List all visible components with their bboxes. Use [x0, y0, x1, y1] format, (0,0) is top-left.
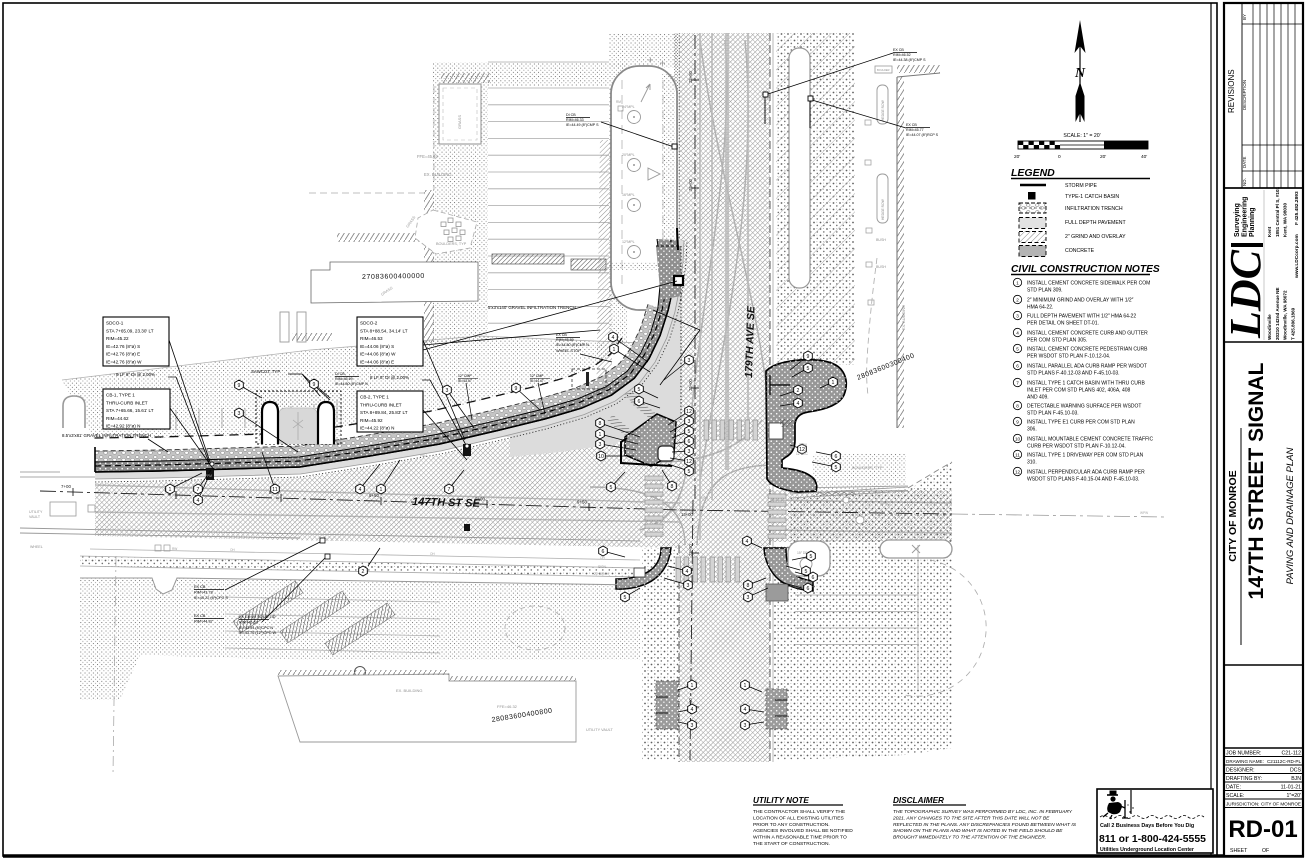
- svg-text:20': 20': [1014, 154, 1020, 160]
- svg-text:UTILITY NOTE: UTILITY NOTE: [753, 796, 809, 805]
- svg-text:DRAFTING BY:: DRAFTING BY:: [1226, 776, 1262, 782]
- svg-text:1: 1: [380, 487, 383, 493]
- svg-text:INSTALL PERPENDICULAR ADA CURB: INSTALL PERPENDICULAR ADA CURB RAMP PER: [1027, 470, 1145, 476]
- svg-text:PER WSDOT STD PLAN F-10.12-04.: PER WSDOT STD PLAN F-10.12-04.: [1027, 354, 1110, 360]
- svg-text:CB-2, TYPE 1: CB-2, TYPE 1: [360, 395, 389, 400]
- svg-text:HEDGE ROW: HEDGE ROW: [881, 99, 885, 121]
- svg-text:STD PLAN F-45.10-03.: STD PLAN F-45.10-03.: [1027, 411, 1079, 417]
- svg-text:RIM=45.89: RIM=45.89: [556, 338, 574, 342]
- svg-text:CURB PER WSDOT STD PLAN F-10.1: CURB PER WSDOT STD PLAN F-10.12-04.: [1027, 444, 1126, 450]
- svg-text:IE=42.76 (8″ø) S: IE=42.76 (8″ø) S: [106, 344, 140, 349]
- svg-text:Kent, WA 98030: Kent, WA 98030: [1283, 203, 1288, 237]
- svg-text:LEGEND: LEGEND: [1011, 167, 1055, 179]
- svg-text:306.: 306.: [1027, 427, 1037, 433]
- svg-text:IE=44.06 (8″ø) W: IE=44.06 (8″ø) W: [360, 352, 396, 357]
- svg-text:11-01-21: 11-01-21: [1281, 784, 1301, 790]
- svg-text:4: 4: [746, 539, 749, 545]
- svg-text:9+50: 9+50: [577, 499, 587, 504]
- svg-text:8: 8: [599, 421, 602, 427]
- svg-text:FFE=46.32: FFE=46.32: [497, 704, 518, 709]
- svg-text:PAVING AND DRAINAGE PLAN: PAVING AND DRAINAGE PLAN: [1285, 447, 1296, 584]
- svg-text:5: 5: [610, 485, 613, 491]
- svg-text:25+00: 25+00: [688, 378, 693, 390]
- svg-text:LDC: LDC: [1221, 249, 1270, 339]
- svg-text:CIVIL CONSTRUCTION NOTES: CIVIL CONSTRUCTION NOTES: [1011, 264, 1160, 275]
- svg-text:IE=42.76 (8″ø) W: IE=42.76 (8″ø) W: [106, 360, 142, 365]
- svg-text:6: 6: [638, 399, 641, 405]
- svg-text:9: 9: [313, 382, 316, 388]
- svg-text:WPW: WPW: [880, 502, 888, 506]
- svg-text:8 LF 8″ DI @ 2.00%: 8 LF 8″ DI @ 2.00%: [116, 372, 155, 377]
- svg-text:10: 10: [1015, 436, 1021, 441]
- svg-text:3: 3: [747, 595, 750, 601]
- svg-text:INSTALL TYPE 1 CATCH BASIN WIT: INSTALL TYPE 1 CATCH BASIN WITH THRU CUR…: [1027, 381, 1145, 387]
- svg-text:3: 3: [691, 723, 694, 729]
- svg-text:4: 4: [744, 707, 747, 713]
- svg-text:BJN: BJN: [1291, 776, 1301, 782]
- svg-text:811 or 1-800-424-5555: 811 or 1-800-424-5555: [1099, 834, 1206, 845]
- svg-text:16″MPL: 16″MPL: [622, 193, 635, 197]
- svg-text:3: 3: [744, 723, 747, 729]
- svg-text:PER COM STD PLAN 305.: PER COM STD PLAN 305.: [1027, 338, 1087, 344]
- svg-text:SDCO-1: SDCO-1: [106, 321, 124, 326]
- svg-text:12' DEC: 12' DEC: [796, 452, 808, 456]
- svg-text:PPM: PPM: [205, 474, 212, 478]
- svg-text:STA 8+89.84, 25.83' LT: STA 8+89.84, 25.83' LT: [360, 410, 408, 415]
- svg-text:IE=44.47: IE=44.47: [530, 379, 544, 383]
- svg-text:24″MPL: 24″MPL: [622, 105, 635, 109]
- svg-text:N: N: [1074, 66, 1086, 81]
- svg-text:3: 3: [446, 388, 449, 394]
- svg-text:IE=43.57: IE=43.57: [458, 379, 472, 383]
- svg-text:FULL DEPTH PAVEMENT: FULL DEPTH PAVEMENT: [1065, 220, 1127, 226]
- svg-text:5: 5: [805, 569, 808, 575]
- svg-text:EX. BUILDING: EX. BUILDING: [396, 688, 422, 693]
- svg-text:WPW: WPW: [700, 496, 708, 500]
- svg-text:RIM=45.22: RIM=45.22: [106, 336, 129, 341]
- svg-text:RIM=45.99: RIM=45.99: [335, 377, 353, 381]
- svg-text:HMA 64-22.: HMA 64-22.: [1027, 305, 1053, 311]
- svg-text:STD PLAN 309.: STD PLAN 309.: [1027, 288, 1063, 294]
- svg-text:IE=42.92 (8″ø) N: IE=42.92 (8″ø) N: [106, 424, 140, 429]
- svg-text:WHEEL STOP: WHEEL STOP: [556, 349, 581, 353]
- svg-text:RIM=43.78: RIM=43.78: [194, 590, 213, 594]
- svg-text:THE CONTRACTOR SHALL VERIFY: THE CONTRACTOR SHALL VERIFY THE: [753, 809, 846, 815]
- svg-text:20': 20': [1100, 154, 1106, 160]
- svg-text:1: 1: [744, 683, 747, 689]
- svg-text:INSTALL CEMENT CONCRETE CURB A: INSTALL CEMENT CONCRETE CURB AND GUTTER: [1027, 331, 1148, 337]
- svg-text:IE=44.06 (8″ø) S: IE=44.06 (8″ø) S: [360, 344, 394, 349]
- svg-text:OH: OH: [600, 556, 605, 560]
- svg-text:5: 5: [688, 429, 691, 435]
- svg-text:1851 Central Pl S, #101: 1851 Central Pl S, #101: [1275, 187, 1280, 237]
- svg-text:OF: OF: [1262, 848, 1269, 854]
- svg-text:C21112C-RD-PL: C21112C-RD-PL: [1267, 759, 1301, 764]
- svg-text:DETECTABLE WARNING SURFACE PER: DETECTABLE WARNING SURFACE PER WSDOT: [1027, 404, 1141, 410]
- svg-text:9: 9: [807, 354, 810, 360]
- svg-text:RIM=45.92: RIM=45.92: [360, 418, 383, 423]
- svg-text:3: 3: [687, 583, 690, 589]
- svg-text:RIM=46.52: RIM=46.52: [893, 53, 911, 57]
- svg-text:SHOWN ON THE PLANS AND WH: SHOWN ON THE PLANS AND WHAT IS NOTED IN …: [893, 828, 1063, 834]
- svg-text:WHEEL: WHEEL: [30, 545, 43, 549]
- svg-text:Surveying: Surveying: [1234, 203, 1241, 237]
- svg-text:REFLECTED IN THE PLANS. AN: REFLECTED IN THE PLANS. ANY DISCREPANCIE…: [893, 822, 1077, 828]
- svg-text:3: 3: [688, 449, 691, 455]
- svg-text:11: 11: [1015, 452, 1020, 457]
- svg-text:BUSH: BUSH: [876, 265, 886, 269]
- svg-text:BUSH: BUSH: [876, 238, 886, 242]
- svg-text:5: 5: [810, 554, 813, 560]
- svg-text:SIGN: SIGN: [799, 443, 807, 447]
- svg-text:DATE:: DATE:: [1226, 784, 1241, 790]
- svg-text:DRAWING NAME:: DRAWING NAME:: [1226, 759, 1264, 764]
- svg-text:EX CB W/ SOLID LID: EX CB W/ SOLID LID: [239, 615, 276, 619]
- svg-text:RW: RW: [172, 547, 177, 551]
- svg-text:SHEET: SHEET: [1230, 848, 1248, 854]
- svg-text:THRU-CURB INLET: THRU-CURB INLET: [360, 402, 402, 407]
- svg-text:4: 4: [359, 487, 362, 493]
- svg-text:IE=43.76 (12″)CPC W: IE=43.76 (12″)CPC W: [239, 631, 277, 635]
- svg-text:DATE: DATE: [1242, 157, 1247, 168]
- svg-text:IE=44.49 (8″)CMP S: IE=44.49 (8″)CMP S: [566, 123, 599, 127]
- svg-text:T 425.806.1869: T 425.806.1869: [1290, 307, 1295, 340]
- svg-text:1: 1: [599, 432, 602, 438]
- svg-text:20″MPL: 20″MPL: [622, 153, 635, 157]
- svg-text:12″MPL: 12″MPL: [622, 240, 635, 244]
- svg-text:INLET PER COM STD PLANS 402, 4: INLET PER COM STD PLANS 402, 406A, 408: [1027, 388, 1131, 394]
- svg-text:STA 8+88.54, 34.14' LT: STA 8+88.54, 34.14' LT: [360, 328, 408, 333]
- svg-text:CITY OF MONROE: CITY OF MONROE: [1261, 801, 1301, 806]
- svg-text:DESCRIPTION: DESCRIPTION: [1242, 80, 1247, 110]
- svg-text:UTILITY VAULT: UTILITY VAULT: [586, 728, 613, 732]
- svg-text:JURISDICTION:: JURISDICTION:: [1226, 801, 1259, 806]
- svg-text:5: 5: [638, 387, 641, 393]
- svg-text:12: 12: [686, 409, 692, 415]
- svg-text:INSTALL PARALLEL ADA CURB RAMP: INSTALL PARALLEL ADA CURB RAMP PER WSDOT: [1027, 364, 1147, 370]
- svg-text:EX CB: EX CB: [893, 48, 904, 52]
- svg-text:INSTALL CEMENT CONCRETE PEDEST: INSTALL CEMENT CONCRETE PEDESTRIAN CURB: [1027, 347, 1148, 353]
- svg-text:DCS: DCS: [1290, 767, 1301, 773]
- svg-text:13+00: 13+00: [681, 512, 693, 517]
- svg-text:INSTALL CEMENT CONCRETE SIDEWA: INSTALL CEMENT CONCRETE SIDEWALK PER COM: [1027, 281, 1150, 287]
- svg-text:6: 6: [812, 575, 815, 581]
- svg-text:OH: OH: [430, 552, 435, 556]
- svg-text:9: 9: [1016, 419, 1019, 424]
- svg-text:20210 142nd Avenue NE: 20210 142nd Avenue NE: [1275, 287, 1280, 340]
- svg-text:GRASS: GRASS: [457, 115, 462, 129]
- svg-text:4: 4: [691, 707, 694, 713]
- svg-text:6: 6: [1016, 363, 1019, 368]
- svg-text:C21-112: C21-112: [1281, 750, 1301, 756]
- svg-text:BOULDERS, TYP: BOULDERS, TYP: [852, 466, 883, 470]
- svg-text:Woodinville, WA 98072: Woodinville, WA 98072: [1283, 290, 1288, 340]
- svg-text:6: 6: [602, 549, 605, 555]
- svg-text:INFILTRATION TRENCH: INFILTRATION TRENCH: [1065, 206, 1123, 212]
- svg-text:INSTALL TYPE E1 CURB PER COM S: INSTALL TYPE E1 CURB PER COM STD PLAN: [1027, 420, 1135, 426]
- svg-text:4: 4: [1016, 330, 1019, 335]
- svg-text:F 425.482.2893: F 425.482.2893: [1294, 191, 1300, 225]
- svg-text:DESIGNER:: DESIGNER:: [1226, 767, 1255, 773]
- svg-text:Planning: Planning: [1249, 207, 1256, 237]
- svg-text:10: 10: [598, 454, 604, 460]
- svg-text:1: 1: [613, 347, 616, 353]
- svg-text:3: 3: [688, 358, 691, 364]
- svg-text:40': 40': [1141, 154, 1147, 160]
- svg-text:7: 7: [448, 487, 451, 493]
- svg-text:BOULDER: BOULDER: [877, 68, 890, 72]
- svg-text:8.5'x3'x81' GRAVEL INFILTRATI: 8.5'x3'x81' GRAVEL INFILTRATION TRENCH: [62, 433, 151, 438]
- svg-text:VAULT: VAULT: [29, 515, 41, 519]
- svg-text:2: 2: [362, 569, 365, 575]
- svg-text:STA 7+65.66, 15.61' LT: STA 7+65.66, 15.61' LT: [106, 408, 154, 413]
- svg-text:5'x3'x140' GRAVEL INFILTRATIO: 5'x3'x140' GRAVEL INFILTRATION TRENCH: [488, 305, 576, 310]
- svg-text:SDCO-2: SDCO-2: [360, 321, 378, 326]
- svg-text:8: 8: [747, 583, 750, 589]
- svg-text:26+00: 26+00: [688, 178, 693, 190]
- svg-text:4: 4: [612, 335, 615, 341]
- svg-text:3: 3: [599, 442, 602, 448]
- svg-text:147TH STREET SIGNAL: 147TH STREET SIGNAL: [1245, 362, 1268, 599]
- svg-text:310.: 310.: [1027, 460, 1037, 466]
- svg-text:AND 409.: AND 409.: [1027, 395, 1049, 401]
- svg-text:EX CB: EX CB: [906, 123, 917, 127]
- svg-text:179TH AVE SE: 179TH AVE SE: [743, 305, 758, 378]
- svg-text:JOB NUMBER:: JOB NUMBER:: [1226, 750, 1261, 756]
- svg-text:NO.: NO.: [1242, 178, 1247, 186]
- svg-text:RIM=45.77: RIM=45.77: [906, 128, 924, 132]
- svg-text:24+50: 24+50: [688, 543, 693, 555]
- svg-text:5: 5: [688, 469, 691, 475]
- svg-text:IE=43.22 (8″)CPC S: IE=43.22 (8″)CPC S: [194, 596, 228, 600]
- svg-text:THE TOPOGRAPHIC SURVEY WAS: THE TOPOGRAPHIC SURVEY WAS PERFORMED BY …: [893, 809, 1073, 815]
- svg-text:STA 7+65.09, 23.30' LT: STA 7+65.09, 23.30' LT: [106, 328, 154, 333]
- svg-text:Woodinville: Woodinville: [1267, 314, 1272, 340]
- svg-text:12″ CMP: 12″ CMP: [530, 374, 544, 378]
- svg-text:11: 11: [272, 487, 277, 493]
- svg-text:Utilities Underground Location: Utilities Underground Location Center: [1100, 847, 1194, 853]
- svg-text:IE=44.06 (8″ø) E: IE=44.06 (8″ø) E: [360, 360, 394, 365]
- svg-text:WITHIN A REASONABLE TIME P: WITHIN A REASONABLE TIME PRIOR TO: [753, 835, 847, 841]
- svg-text:IE=44.80 (8″)CMP N: IE=44.80 (8″)CMP N: [556, 343, 589, 347]
- svg-text:4: 4: [686, 569, 689, 575]
- svg-text:4: 4: [797, 401, 800, 407]
- svg-text:www.LDCcorp.com: www.LDCcorp.com: [1294, 234, 1300, 279]
- svg-text:3: 3: [238, 411, 241, 417]
- svg-text:Call 2 Business Days Before Yo: Call 2 Business Days Before You Dig: [1100, 823, 1194, 829]
- svg-text:RD-01: RD-01: [1228, 816, 1297, 843]
- svg-text:2″ MINIMUM GRIND AND OVERLAY W: 2″ MINIMUM GRIND AND OVERLAY WITH 1/2″: [1027, 298, 1134, 304]
- svg-text:RIM=45.53: RIM=45.53: [239, 620, 258, 624]
- svg-text:DI CB: DI CB: [566, 113, 576, 117]
- svg-text:PPM: PPM: [420, 454, 427, 458]
- svg-text:DI CB: DI CB: [335, 372, 345, 376]
- svg-text:12: 12: [686, 459, 692, 465]
- svg-text:2: 2: [797, 388, 800, 394]
- svg-text:RIM=46.33: RIM=46.33: [566, 118, 584, 122]
- svg-text:WSDOT STD PLANS F-40.15-04 AND: WSDOT STD PLANS F-40.15-04 AND F-45.10-0…: [1027, 477, 1139, 483]
- svg-text:RM: RM: [616, 100, 621, 104]
- svg-text:12: 12: [1015, 469, 1021, 474]
- svg-text:RIM=44.62: RIM=44.62: [106, 416, 129, 421]
- svg-text:SAWCUT, TYP: SAWCUT, TYP: [251, 369, 280, 374]
- svg-text:PER DETAIL ON SHEET DT-01.: PER DETAIL ON SHEET DT-01.: [1027, 321, 1099, 327]
- svg-text:5: 5: [807, 366, 810, 372]
- svg-text:1: 1: [169, 487, 172, 493]
- svg-text:1: 1: [1016, 280, 1019, 285]
- svg-text:9: 9: [515, 386, 518, 392]
- svg-text:IE=43.94 (8″)CPC N: IE=43.94 (8″)CPC N: [239, 626, 273, 630]
- svg-text:3: 3: [1016, 313, 1019, 318]
- svg-text:INSTALL TYPE 1 DRIVEWAY PER CO: INSTALL TYPE 1 DRIVEWAY PER COM STD PLAN: [1027, 453, 1144, 459]
- svg-text:BOULDERS, TYP: BOULDERS, TYP: [436, 242, 467, 246]
- svg-text:8+50: 8+50: [369, 493, 379, 498]
- svg-text:AGENCIES INVOLVED SHALL BE: AGENCIES INVOLVED SHALL BE NOTIFIED: [753, 828, 853, 834]
- svg-text:SCALE:: SCALE:: [1226, 793, 1244, 799]
- svg-text:THE START OF CONSTRUCTION.: THE START OF CONSTRUCTION.: [753, 841, 830, 847]
- svg-text:IE=44.38 (8″)CMP S: IE=44.38 (8″)CMP S: [893, 58, 926, 62]
- svg-text:1″=20': 1″=20': [1286, 793, 1301, 799]
- svg-text:STD PLANS F-40.12-03 AND F-45.: STD PLANS F-40.12-03 AND F-45.10-03.: [1027, 371, 1120, 377]
- svg-text:7: 7: [197, 487, 200, 493]
- svg-text:1: 1: [832, 380, 835, 386]
- svg-text:8 LF 8″ DI @ 2.00%: 8 LF 8″ DI @ 2.00%: [370, 375, 409, 380]
- svg-text:IE=42.76 (8″ø) E: IE=42.76 (8″ø) E: [106, 352, 140, 357]
- svg-text:FFE=45.92: FFE=45.92: [417, 154, 439, 159]
- svg-text:IE=44.80 (8″)CMP N: IE=44.80 (8″)CMP N: [335, 382, 368, 386]
- svg-text:9: 9: [238, 383, 241, 389]
- svg-text:CONCRETE: CONCRETE: [1065, 248, 1095, 254]
- svg-text:CB-1, TYPE 1: CB-1, TYPE 1: [106, 393, 135, 398]
- svg-text:6: 6: [835, 454, 838, 460]
- svg-text:REVISIONS: REVISIONS: [1227, 69, 1236, 113]
- svg-text:Kent: Kent: [1267, 226, 1272, 237]
- svg-text:PRIOR TO ANY CONSTRUCTION.: PRIOR TO ANY CONSTRUCTION.: [753, 822, 830, 828]
- svg-text:3: 3: [688, 419, 691, 425]
- svg-text:8: 8: [1016, 403, 1019, 408]
- svg-text:THRU-CURB INLET: THRU-CURB INLET: [106, 400, 148, 405]
- svg-text:UTILITY: UTILITY: [29, 510, 43, 514]
- svg-text:CITY OF MONROE: CITY OF MONROE: [1227, 470, 1239, 561]
- svg-text:OH: OH: [230, 548, 235, 552]
- svg-text:5: 5: [835, 465, 838, 471]
- svg-text:EX CB: EX CB: [194, 614, 206, 618]
- svg-text:HEDGE ROW: HEDGE ROW: [881, 198, 885, 220]
- svg-text:25+50: 25+50: [688, 70, 693, 82]
- svg-text:WPW: WPW: [1140, 511, 1148, 515]
- svg-text:7+00: 7+00: [61, 484, 71, 489]
- svg-text:147TH ST SE: 147TH ST SE: [412, 496, 481, 510]
- svg-text:TYPE-1 CATCH BASIN: TYPE-1 CATCH BASIN: [1065, 194, 1119, 200]
- svg-text:4: 4: [197, 498, 200, 504]
- svg-text:Engineering: Engineering: [1242, 197, 1249, 237]
- svg-text:1: 1: [691, 683, 694, 689]
- svg-text:EX. BUILDING: EX. BUILDING: [424, 172, 452, 177]
- svg-text:20' BIRCH: 20' BIRCH: [594, 572, 610, 576]
- svg-text:5: 5: [624, 595, 627, 601]
- svg-text:27083600400000: 27083600400000: [362, 273, 425, 281]
- svg-text:LOCATION OF ALL EXISTING U: LOCATION OF ALL EXISTING UTILITIES: [753, 815, 845, 821]
- svg-text:STORM PIPE: STORM PIPE: [1065, 183, 1097, 189]
- svg-text:BROUGHT IMMEDIATELY TO THE: BROUGHT IMMEDIATELY TO THE ATTENTION OF …: [893, 835, 1046, 841]
- svg-text:EX CB: EX CB: [194, 585, 206, 589]
- svg-text:2: 2: [1016, 297, 1019, 302]
- svg-text:IE=44.07 (8″)RCP S: IE=44.07 (8″)RCP S: [906, 133, 939, 137]
- svg-text:DISCLAIMER: DISCLAIMER: [893, 796, 944, 805]
- svg-text:0: 0: [1058, 154, 1061, 160]
- svg-text:RIM=46.53: RIM=46.53: [360, 336, 383, 341]
- svg-text:6: 6: [807, 586, 810, 592]
- svg-text:EX. BUILDING: EX. BUILDING: [902, 305, 906, 330]
- svg-text:12″ CMP: 12″ CMP: [458, 374, 472, 378]
- svg-text:IE=44.22 (8″ø) N: IE=44.22 (8″ø) N: [360, 426, 394, 431]
- svg-text:8: 8: [671, 484, 674, 490]
- svg-text:SIGN: SIGN: [598, 565, 606, 569]
- svg-text:5: 5: [1016, 346, 1019, 351]
- svg-text:2″ GRIND AND OVERLAY: 2″ GRIND AND OVERLAY: [1065, 234, 1126, 240]
- svg-text:FULL DEPTH PAVEMENT WITH 1/2″: FULL DEPTH PAVEMENT WITH 1/2″ HMA 64-22: [1027, 314, 1136, 320]
- svg-text:BY: BY: [1242, 14, 1247, 20]
- svg-text:SCALE: 1″ = 20': SCALE: 1″ = 20': [1063, 133, 1100, 139]
- svg-text:6: 6: [688, 439, 691, 445]
- svg-text:INSTALL MOUNTABLE CEMENT CONCR: INSTALL MOUNTABLE CEMENT CONCRETE TRAFFI…: [1027, 437, 1154, 443]
- svg-text:RIM=44.87: RIM=44.87: [194, 619, 213, 623]
- svg-text:2021. ANY CHANGES TO THE: 2021. ANY CHANGES TO THE SITE AFTER THIS…: [892, 815, 1050, 821]
- svg-text:7: 7: [1016, 380, 1019, 385]
